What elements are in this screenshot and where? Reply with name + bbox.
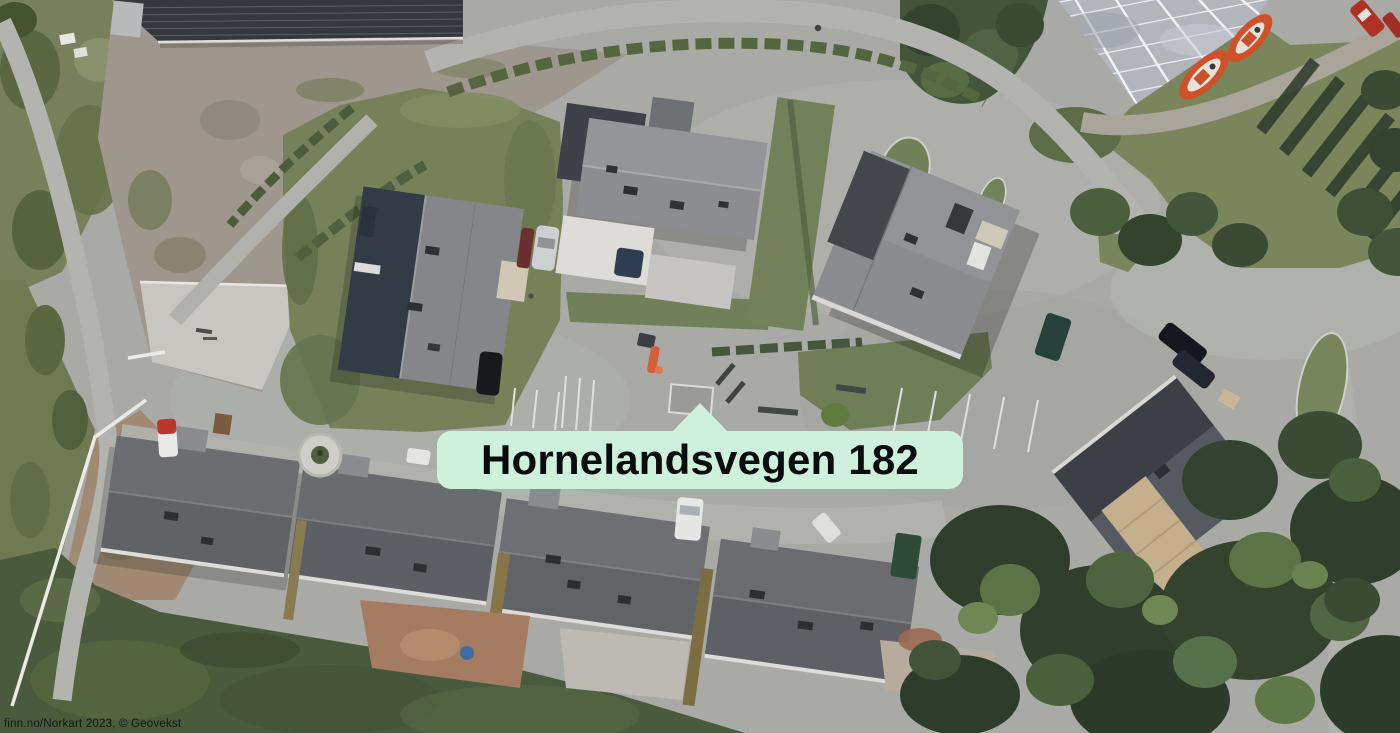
parked-car-black <box>476 351 503 396</box>
trampoline <box>460 646 474 660</box>
manhole <box>701 477 706 482</box>
storage-bin <box>213 413 233 435</box>
hot-tub <box>614 247 645 278</box>
aerial-map[interactable]: Hornelandsvegen 182 finn.no/Norkart 2023… <box>0 0 1400 733</box>
map-attribution: finn.no/Norkart 2023, © Geovekst <box>4 719 181 731</box>
parked-car-red-white <box>157 418 179 457</box>
manhole <box>815 25 821 31</box>
aerial-photo-layer <box>0 0 1400 733</box>
parked-car-white <box>406 448 431 466</box>
manhole <box>528 293 533 298</box>
parked-van-white <box>674 497 704 541</box>
